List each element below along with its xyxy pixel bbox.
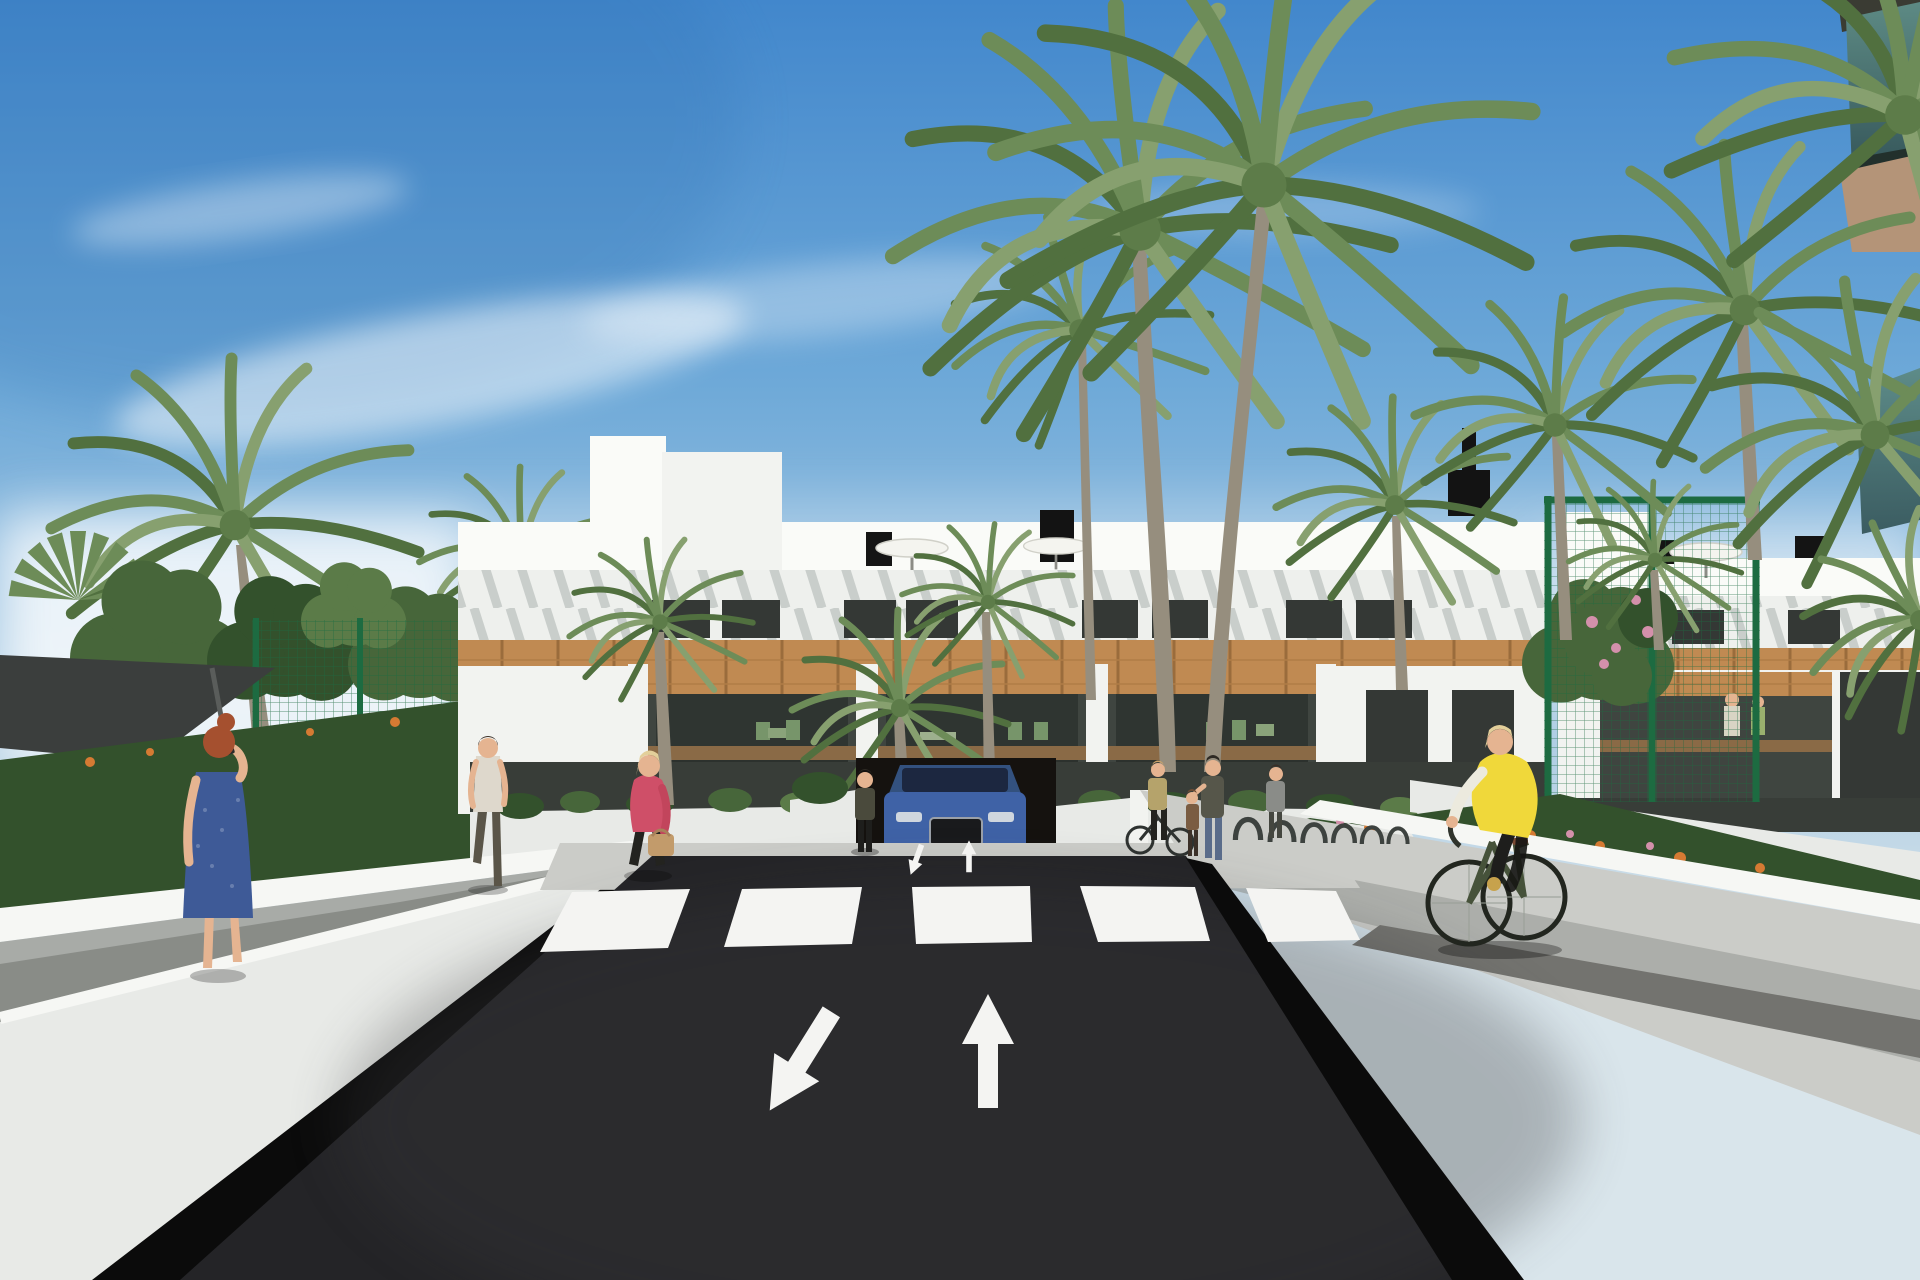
headlight-icon	[896, 812, 922, 822]
headlight-icon	[988, 812, 1014, 822]
crosswalk-stripe	[724, 887, 862, 947]
crosswalk-stripe	[912, 886, 1032, 944]
red-hair	[203, 726, 235, 758]
grille	[930, 818, 982, 846]
roof-tower	[662, 452, 782, 576]
scene	[0, 0, 1920, 1280]
yellow-vest	[1472, 753, 1538, 838]
handbag	[648, 834, 674, 856]
render-canvas: { "meta": { "kind": "3d-architectural-re…	[0, 0, 1920, 1280]
shoe	[1487, 877, 1501, 891]
windshield	[902, 768, 1008, 792]
child	[1186, 804, 1199, 830]
crosswalk-stripe	[1080, 886, 1210, 942]
